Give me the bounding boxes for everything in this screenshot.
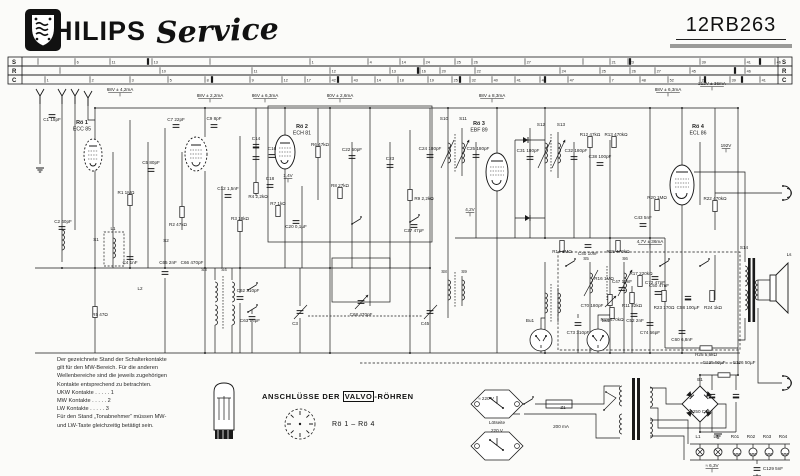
component-label: R9 2,2kΩ: [414, 196, 434, 201]
component-label: R25 5,6kΩ: [695, 352, 717, 357]
ruler-row-label-s: S: [12, 60, 16, 66]
service-note-line: LW Kontakte . . . . . 3: [57, 405, 227, 413]
component-label: B1: [697, 377, 703, 382]
tube-ro2: [275, 135, 295, 169]
ruler-tick-number: 9: [252, 78, 254, 82]
ruler-tick-number: 11: [254, 69, 258, 73]
component-label: Lötseite: [489, 420, 506, 425]
component-label: C66 470pF: [181, 260, 204, 265]
ruler-tick-number: 24: [562, 69, 566, 73]
ruler-tick-number: 22: [477, 69, 481, 73]
tube-ro1-system-b: [185, 137, 207, 171]
ruler-tick-number: 1: [312, 60, 314, 64]
ruler-tick-number: 26: [474, 60, 478, 64]
component-label: Bu2: [602, 318, 611, 323]
ruler-tick-number: 3: [132, 78, 134, 82]
component-label: S2: [163, 238, 169, 243]
voltage-annotation: 4,2V: [465, 207, 475, 212]
ruler-tick-number: 45: [692, 69, 696, 73]
component-label: S6: [622, 256, 628, 261]
ruler-tick-number: 1: [47, 78, 49, 82]
ruler-tick-number: 46: [777, 60, 781, 64]
ruler-tick-number: 27: [527, 60, 531, 64]
component-label: S9: [461, 269, 467, 274]
voltage-annotation: 88V ± 8,3mA: [479, 93, 506, 98]
service-note-line: und LW-Taste gleichzeitig betätigt sein.: [57, 422, 227, 430]
ruler-tick-number: 2: [92, 78, 94, 82]
component-label: Rö3: [763, 434, 772, 439]
ruler-tick-number: 52: [670, 78, 674, 82]
component-label: C4 1nF: [122, 260, 137, 265]
ruler-tick-number: 41: [747, 60, 751, 64]
component-label: S1: [93, 237, 99, 242]
ruler-row-label-s-right: S: [782, 60, 786, 66]
component-label: E250 C75: [690, 409, 711, 414]
ruler-tick-number: 40: [494, 78, 498, 82]
component-label: C126 50µF: [733, 360, 756, 365]
service-note-line: gilt für den MW-Bereich. Für die anderen: [57, 364, 227, 372]
component-label: C52 2nF: [626, 318, 644, 323]
oscillator-coils: [62, 230, 632, 325]
component-label: S11: [459, 116, 467, 121]
ruler-tick-number: 20: [442, 69, 446, 73]
component-label: Ls: [787, 252, 793, 257]
component-label: C70 180pF: [581, 303, 604, 308]
component-label: C20 0,1µF: [285, 224, 307, 229]
socket-pin-diagram: [285, 409, 315, 439]
component-label: C68 470pF: [350, 312, 373, 317]
component-label: S8: [441, 269, 447, 274]
tube-range-label: Rö 1 – Rö 4: [332, 421, 375, 428]
ruler-row-label-c: C: [12, 78, 17, 84]
voltage-annotation: 192V: [721, 143, 733, 148]
component-label: C7 22pF: [167, 117, 185, 122]
ruler-tick-number: 42: [332, 78, 336, 82]
component-label: R3 18kΩ: [231, 216, 250, 221]
component-label: S12: [537, 122, 546, 127]
component-label: C73 310pF: [567, 330, 590, 335]
component-label: R24 1kΩ: [704, 305, 723, 310]
component-label: L2: [137, 286, 143, 291]
component-label: R13 470kΩ: [604, 132, 628, 137]
headphone-jack-bottom: [782, 375, 792, 391]
component-label: S4: [221, 267, 227, 272]
component-label: 220 V: [491, 428, 504, 433]
service-note-line: MW Kontakte . . . . . 2: [57, 397, 227, 405]
tube-connections-caption: ANSCHLÜSSE DER VALVO-RÖHREN: [262, 392, 414, 401]
component-label: R15 470kΩ: [606, 249, 630, 254]
ruler-heavy-mark: [741, 76, 743, 83]
component-label: ≈ 220 V: [478, 396, 495, 401]
ruler-tick-number: 12: [284, 78, 288, 82]
ruler-tick-number: 8: [207, 78, 209, 82]
headphone-jack-top: [782, 185, 792, 201]
service-document-page: PHILIPS Service 12RB263 S R: [0, 0, 800, 476]
component-label: C38 100pF: [589, 154, 612, 159]
tube-ref: Rö 3: [473, 121, 485, 127]
component-label: C60 6,8nF: [671, 337, 693, 342]
component-label: C74 56pF: [640, 330, 660, 335]
component-label: L1: [110, 226, 116, 231]
component-label: C18: [266, 176, 275, 181]
component-label: C9 8pF: [206, 116, 221, 121]
heater-chain: [733, 448, 789, 456]
ruler-tick-number: 46: [747, 69, 751, 73]
component-label: R22 470kΩ: [703, 196, 727, 201]
component-label: S5: [583, 256, 589, 261]
caption-post: -RÖHREN: [374, 392, 413, 401]
voltage-annotation: 68V ± 4,2mA: [107, 87, 134, 92]
ruler-tick-number: 39: [732, 78, 736, 82]
component-label: Bu1: [526, 318, 535, 323]
component-label: C72 47pF: [645, 280, 665, 285]
tube-ref: Rö 1: [76, 120, 88, 126]
ruler-tick-number: 11: [112, 60, 116, 64]
component-label: S10: [440, 116, 449, 121]
service-note-line: Für den Stand „Tonabnehmer“ müssen MW-: [57, 413, 227, 421]
component-label: C31 180pF: [517, 148, 540, 153]
component-label: Rö4: [779, 434, 788, 439]
component-label: C63 56pF: [240, 318, 260, 323]
component-label: C65 2nF: [159, 260, 177, 265]
component-label: L1: [695, 434, 701, 439]
component-label: C14: [252, 136, 261, 141]
service-note: Der gezeichnete Stand der Schalterkontak…: [57, 356, 227, 430]
voltage-annotation: ≈ 6,3V: [705, 463, 719, 468]
component-label: C5 80pF: [142, 160, 160, 165]
ruler-heavy-mark: [459, 76, 461, 83]
component-label: C58 100µF: [677, 305, 700, 310]
voltage-annotation: 1,4V: [283, 173, 293, 178]
component-label: C27 47pF: [404, 228, 424, 233]
component-label: C12 1,5nF: [217, 186, 239, 191]
service-note-line: UKW Kontakte . . . . . 1: [57, 389, 227, 397]
rectifier-bridge: [682, 386, 718, 422]
ruler-tick-number: 25: [457, 60, 461, 64]
ruler-tick-number: 41: [762, 78, 766, 82]
component-label: R4 2,2kΩ: [248, 194, 268, 199]
component-label: R6 47kΩ: [311, 142, 330, 147]
tube-type: ECH 81: [293, 130, 311, 136]
component-label: R12 47kΩ: [580, 132, 601, 137]
ruler-tick-number: 18: [400, 78, 404, 82]
component-label: C47 10nF: [612, 279, 632, 284]
dial-lamps: [696, 448, 722, 456]
ruler-tick-number: 24: [426, 60, 430, 64]
ruler-tick-number: 14: [377, 78, 381, 82]
voltage-annotation: 88V ± 2,2mA: [197, 93, 224, 98]
tube-ro4: [670, 165, 694, 205]
voltage-annotation: 86V ± 6,3mA: [252, 93, 279, 98]
tube-type: EBF 89: [470, 127, 487, 133]
component-label: Rö2: [747, 434, 756, 439]
ruler-heavy-mark: [211, 76, 213, 83]
component-label: C25 180pF: [467, 146, 490, 151]
speaker-icon: [770, 263, 788, 313]
ruler-tick-number: 32: [472, 78, 476, 82]
ruler-heavy-mark: [734, 67, 736, 74]
ruler-heavy-mark: [629, 58, 631, 65]
output-transformer: [745, 258, 758, 322]
component-label: R7 1kΩ: [270, 201, 286, 206]
ruler-tick-number: 27: [657, 69, 661, 73]
component-label: R14 1MΩ: [552, 249, 572, 254]
ruler-tick-number: 19: [430, 78, 434, 82]
component-label: R11 22kΩ: [622, 303, 643, 308]
tube-ro3: [486, 153, 508, 191]
component-label: R17 220kΩ: [629, 271, 653, 276]
ruler-heavy-mark: [147, 58, 149, 65]
component-label: R1 1MΩ: [118, 190, 136, 195]
component-label: C125 50µF: [703, 360, 726, 365]
service-note-line: Kontakte entsprechend zu betrachten.: [57, 381, 227, 389]
component-label: C3: [292, 321, 298, 326]
ruler-heavy-mark: [544, 76, 546, 83]
filter-caps: [709, 373, 761, 476]
component-label: R2 47kΩ: [169, 222, 188, 227]
ruler-tick-number: 21: [612, 60, 616, 64]
mains-fuse: [546, 400, 572, 408]
ruler-heavy-mark: [759, 58, 761, 65]
tube-ref: Rö 2: [296, 124, 308, 130]
component-label: R23 170Ω: [654, 305, 675, 310]
service-note-line: Wellenbereiche sind die jeweils zugehöri…: [57, 372, 227, 380]
component-label: C32 180pF: [565, 148, 588, 153]
ruler-heavy-mark: [337, 76, 339, 83]
ruler-row-label-r-right: R: [782, 69, 787, 75]
tube-ro1-system-a: [84, 139, 102, 171]
component-label: S14: [740, 245, 749, 250]
voltage-annotation: 88V ± 6,3mA: [655, 87, 682, 92]
component-label: R20 1MΩ: [647, 195, 667, 200]
ruler-tick-number: 25: [454, 78, 458, 82]
component-label: S13: [557, 122, 566, 127]
voltage-annotation: 212V ± 36mA: [698, 81, 727, 86]
ruler-tick-number: 13: [392, 69, 396, 73]
ruler-tick-number: 7: [612, 78, 614, 82]
voltage-annotation: 80V ± 2,6mA: [327, 93, 354, 98]
voltage-annotation: 4,7V ± 36mA: [637, 239, 664, 244]
component-label: R5 47Ω: [92, 312, 108, 317]
component-label: Rö1: [731, 434, 740, 439]
component-label: C129 5nF: [763, 466, 783, 471]
ruler-tick-number: 26: [632, 69, 636, 73]
component-label: C2 40pF: [54, 219, 72, 224]
ruler-tick-number: 6: [77, 60, 79, 64]
component-label: C23: [386, 156, 395, 161]
ruler-heavy-mark: [417, 67, 419, 74]
ruler-row-label-r: R: [12, 69, 17, 75]
component-label: C1 15pF: [43, 117, 61, 122]
service-note-line: Der gezeichnete Stand der Schalterkontak…: [57, 356, 227, 364]
tube-type: ECC 85: [73, 126, 91, 132]
ruler-row-label-c-right: C: [782, 78, 787, 84]
ruler-tick-number: 48: [642, 78, 646, 82]
ruler-tick-number: 43: [354, 78, 358, 82]
switch-contact-ruler: S R C S R C 6111314142425262721233941461…: [8, 57, 792, 84]
component-label: L2: [713, 434, 719, 439]
ruler-tick-number: 47: [570, 78, 574, 82]
component-label: Z1: [560, 405, 566, 410]
component-label: R8 27kΩ: [331, 183, 350, 188]
power-transformer: [603, 378, 652, 440]
ruler-tick-number: 25: [602, 69, 606, 73]
component-label: C43 5nF: [634, 215, 652, 220]
ruler-tick-number: 5: [170, 78, 172, 82]
if-transformer-2: [538, 140, 565, 168]
ruler-tick-number: 13: [154, 60, 158, 64]
tube-type: ECL 86: [689, 130, 706, 136]
component-label: 200 mA: [553, 424, 570, 429]
ruler-tick-number: 39: [702, 60, 706, 64]
component-label: C62 310pF: [237, 288, 260, 293]
tube-ref: Rö 4: [692, 124, 704, 130]
ruler-tick-number: 10: [162, 69, 166, 73]
ruler-tick-number: 17: [307, 78, 311, 82]
ruler-tick-number: 16: [422, 69, 426, 73]
ruler-tick-number: 41: [517, 78, 521, 82]
component-label: S3: [201, 267, 207, 272]
ruler-tick-number: 14: [402, 60, 406, 64]
caption-brand: VALVO: [343, 391, 375, 402]
ruler-ticks: 6111314142425262721233941461011121316202…: [38, 58, 781, 83]
ruler-tick-number: 12: [332, 69, 336, 73]
component-label: C22 50pF: [342, 147, 362, 152]
component-label: C24 180pF: [419, 146, 442, 151]
component-label: C16: [268, 146, 277, 151]
component-label: C45: [421, 321, 430, 326]
ruler-tick-number: 4: [370, 60, 372, 64]
caption-pre: ANSCHLÜSSE DER: [262, 392, 343, 401]
